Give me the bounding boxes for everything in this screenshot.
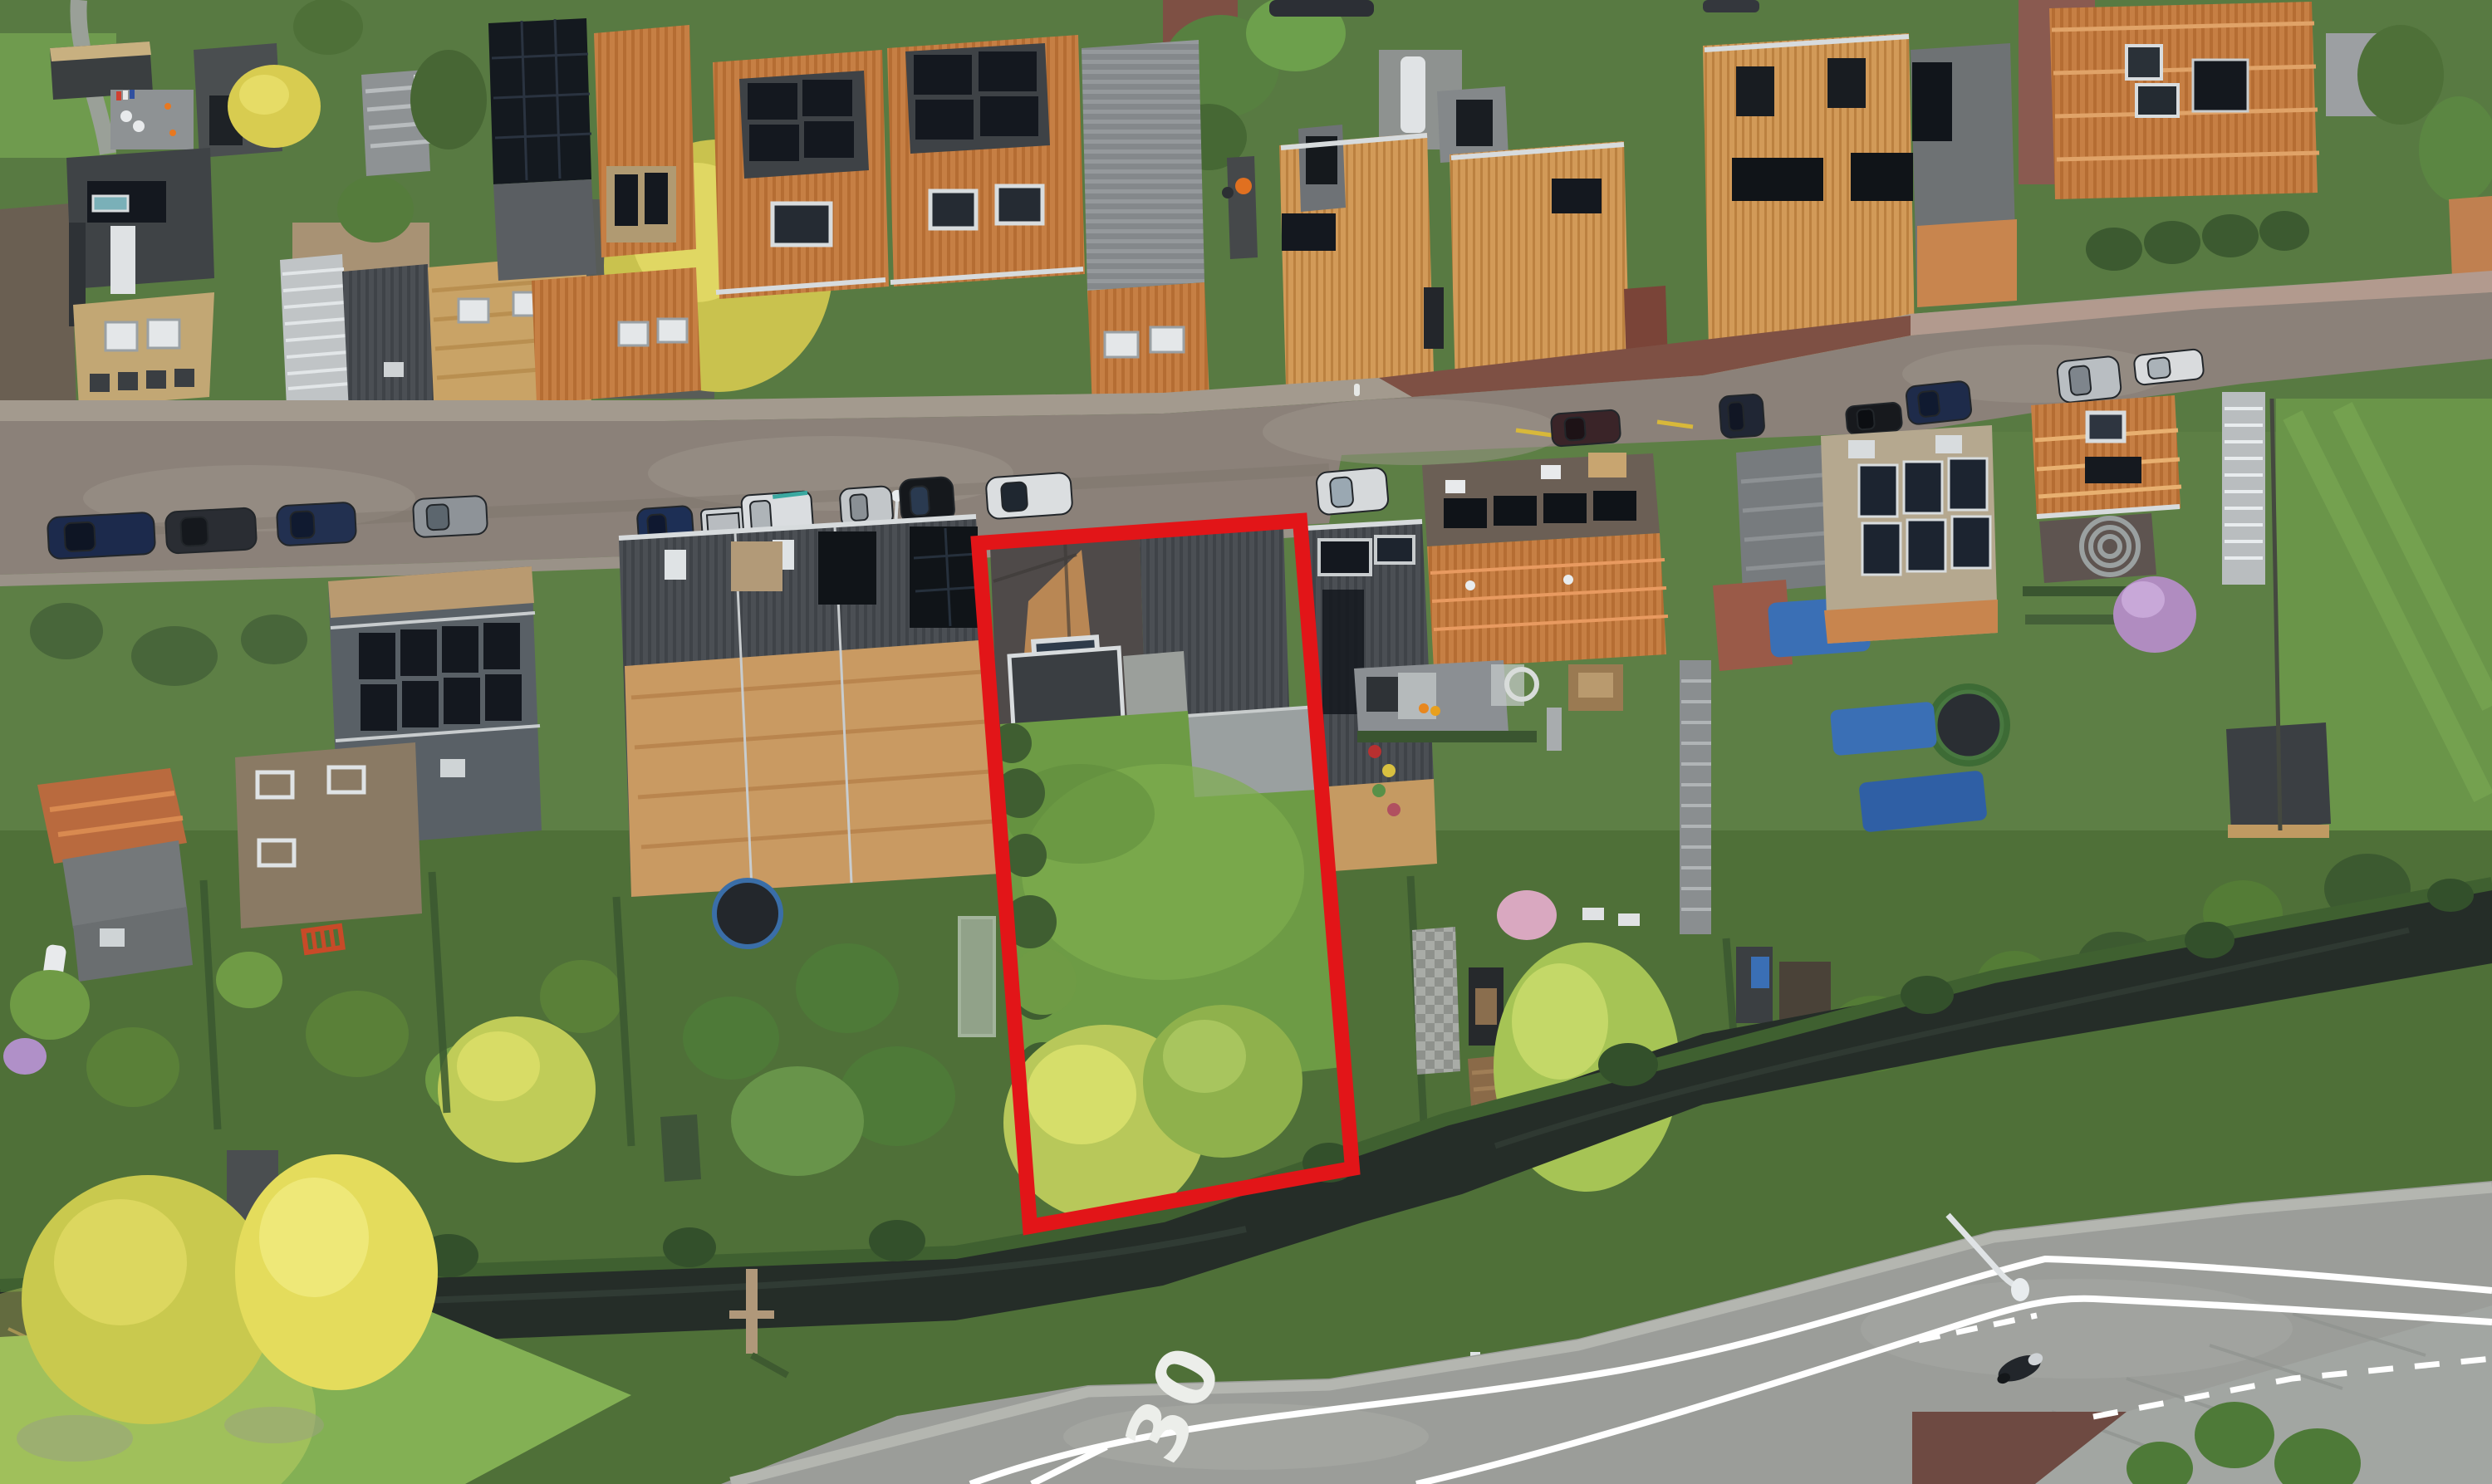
trampoline-left (714, 880, 781, 947)
aerial-photo-canvas: 30 (0, 0, 2492, 1484)
checkered-patio (1412, 927, 1460, 1075)
pink-blossom-tree (1497, 890, 1557, 940)
house-top-left (66, 148, 214, 407)
blue-tarp (1830, 702, 1937, 757)
parked-car-driveway (1401, 56, 1425, 133)
solar-array-roof (488, 18, 591, 184)
parked-car-alley (1703, 0, 1759, 12)
road-debris (1354, 384, 1360, 396)
parcel-flat-extension (1009, 648, 1123, 727)
house-h7 (887, 35, 1085, 287)
terrace-block-a (1279, 125, 1434, 386)
house-h6 (713, 50, 889, 299)
garden-shed-green (660, 1114, 701, 1182)
greenhouse (959, 918, 994, 1036)
trampoline-right (1927, 683, 2010, 766)
parked-car-alley (1269, 0, 1374, 17)
aerial-photo: 30 (0, 0, 2492, 1484)
person-in-garden (1235, 178, 1252, 194)
house-h8 (1082, 40, 1209, 407)
house-roof-brown (0, 203, 76, 419)
lilac-tree-left (3, 1038, 47, 1075)
house-roof-dark (342, 264, 434, 413)
houses-m3-row (619, 517, 1005, 897)
